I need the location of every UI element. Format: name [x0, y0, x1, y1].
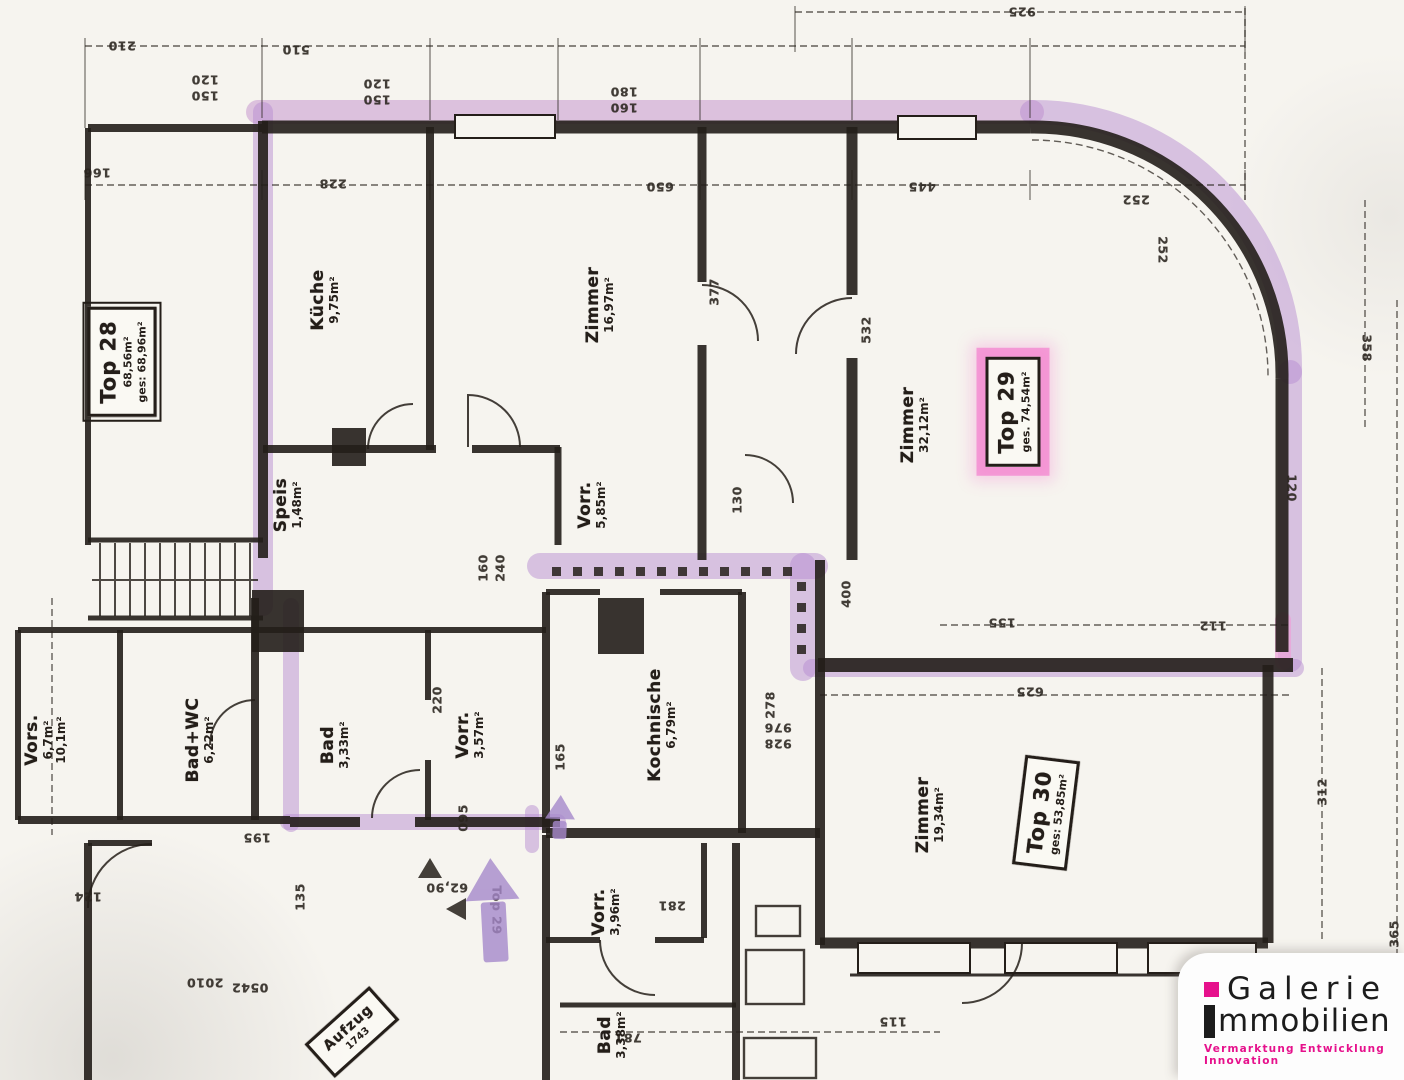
logo-i-bar-icon: [1204, 1005, 1215, 1038]
room-area: 6,7m²: [42, 714, 55, 765]
room-name: Vorr.: [454, 711, 473, 758]
entrance-arrow: [455, 856, 530, 964]
dimension-label: 165: [553, 743, 568, 771]
dimension-label: 120: [191, 73, 219, 88]
dimension-label: 400: [839, 580, 854, 608]
floorplan-scan: 9252105101201501201501801601662286504452…: [0, 0, 1404, 1080]
room-label-vorraum-2: Vorr.3,57m²: [454, 711, 486, 758]
dimension-label: 115: [879, 1015, 907, 1030]
room-area: 3,96m²: [609, 888, 622, 935]
dimension-label: 510: [282, 43, 310, 58]
room-area: 3,57m²: [473, 711, 486, 758]
room-label-bad-2: Bad3,38m²: [596, 1011, 628, 1058]
logo-pink-square-icon: [1204, 982, 1219, 997]
room-label-zimmer-3: Zimmer19,34m²: [914, 777, 946, 854]
dimension-label: 650: [646, 180, 674, 195]
dimension-label: 252: [1122, 193, 1150, 208]
survey-triangle-icon: [418, 858, 442, 878]
dimension-label: 928: [764, 737, 792, 752]
dimension-label: 220: [430, 686, 445, 714]
dimension-label: 210: [108, 39, 136, 54]
dimension-label: 925: [1008, 5, 1036, 20]
dimension-label: 358: [1360, 334, 1375, 362]
room-name: Küche: [309, 269, 328, 330]
dimension-label: 155: [988, 616, 1016, 631]
apartment-stamp-top-29: Top 29ges. 74,54m²: [986, 357, 1041, 467]
room-label-vorraum-3: Vorr.3,96m²: [590, 888, 622, 935]
apartment-stamp-top-30: Top 30ges: 53,85m²: [1012, 755, 1080, 870]
arrow-stem: [480, 901, 508, 962]
dimension-label: 252: [1156, 236, 1171, 264]
logo-brand-first: Galerie: [1227, 971, 1387, 1007]
dimension-label: 0542: [232, 981, 269, 996]
dimension-label: 124: [74, 890, 102, 905]
dimension-label: 625: [1016, 685, 1044, 700]
apartment-stamp-aufzug: Aufzug1743: [305, 986, 400, 1078]
room-label-vorsaal: Vors.6,7m²10,1m²: [23, 714, 69, 765]
dimension-label: 130: [730, 486, 745, 514]
dimension-label: 377: [707, 278, 722, 306]
dimension-label: 095: [456, 804, 471, 832]
room-label-zimmer-1: Zimmer16,97m²: [584, 267, 616, 344]
dimension-label: 312: [1315, 778, 1330, 806]
dimension-label: 160: [476, 554, 491, 582]
dimension-label: 150: [191, 89, 219, 104]
dimension-label: 160: [610, 101, 638, 116]
room-name: Zimmer: [584, 267, 603, 344]
dimension-label: 445: [908, 180, 936, 195]
dimension-label: 135: [293, 883, 308, 911]
room-area: 9,75m²: [328, 269, 341, 330]
room-area-extra: 10,1m²: [56, 714, 69, 765]
survey-triangle-icon: [446, 898, 466, 920]
stamp-title: Top 29: [995, 370, 1019, 454]
room-name: Vors.: [23, 714, 42, 765]
dimension-label: 365: [1387, 920, 1402, 948]
room-area: 3,33m²: [338, 721, 351, 768]
dimension-label: 195: [243, 831, 271, 846]
dimension-label: 120: [363, 77, 391, 92]
room-label-bad-wc: Bad+WC6,22m²: [184, 697, 216, 782]
arrow-head: [545, 794, 576, 819]
room-name: Vorr.: [590, 888, 609, 935]
room-name: Bad: [319, 721, 338, 768]
arrow-head: [463, 857, 519, 902]
stamp-line: ges. 74,54m²: [1020, 370, 1033, 454]
room-label-speis: Speis1,48m²: [272, 478, 304, 532]
room-label-bad-1: Bad3,33m²: [319, 721, 351, 768]
dimension-label: 2010: [187, 976, 224, 991]
dimension-label: 112: [1199, 619, 1227, 634]
room-label-zimmer-2: Zimmer32,12m²: [899, 387, 931, 464]
room-name: Zimmer: [914, 777, 933, 854]
room-area: 5,85m²: [595, 481, 608, 528]
galerie-immobilien-logo: Galerie mmobilien Vermarktung Entwicklun…: [1178, 953, 1404, 1080]
room-area: 19,34m²: [933, 777, 946, 854]
label-layer: 9252105101201501201501801601662286504452…: [0, 0, 1404, 1080]
room-area: 16,97m²: [603, 267, 616, 344]
apartment-stamp-top-28: Top 2868,56m²ges: 68,96m²: [88, 307, 157, 417]
dimension-label: 120: [1285, 474, 1300, 502]
dimension-label: 240: [493, 554, 508, 582]
room-label-kueche: Küche9,75m²: [309, 269, 341, 330]
dimension-label: 976: [764, 721, 792, 736]
logo-brand-second: mmobilien: [1218, 1003, 1391, 1039]
room-name: Bad+WC: [184, 697, 203, 782]
room-area: 3,38m²: [615, 1011, 628, 1058]
dimension-label: 180: [610, 85, 638, 100]
dimension-label: 166: [83, 166, 111, 181]
stamp-line: 68,56m²: [122, 320, 135, 404]
room-area: 6,79m²: [665, 668, 678, 782]
secondary-arrow: [541, 794, 579, 839]
arrow-stem: [552, 821, 567, 839]
room-label-kochnische: Kochnische6,79m²: [646, 668, 678, 782]
room-label-vorraum-1: Vorr.5,85m²: [576, 481, 608, 528]
dimension-label: 278: [763, 691, 778, 719]
room-name: Zimmer: [899, 387, 918, 464]
dimension-label: 150: [363, 93, 391, 108]
room-area: 32,12m²: [918, 387, 931, 464]
room-name: Speis: [272, 478, 291, 532]
room-area: 6,22m²: [203, 697, 216, 782]
dimension-label: 532: [859, 316, 874, 344]
logo-tagline: Vermarktung Entwicklung Innovation: [1204, 1043, 1404, 1067]
dimension-label: 281: [658, 899, 686, 914]
stamp-title: Top 28: [97, 320, 121, 404]
stamp-line: ges: 68,96m²: [136, 320, 149, 404]
room-area: 1,48m²: [291, 478, 304, 532]
room-name: Kochnische: [646, 668, 665, 782]
room-name: Bad: [596, 1011, 615, 1058]
dimension-label: 228: [319, 177, 347, 192]
room-name: Vorr.: [576, 481, 595, 528]
